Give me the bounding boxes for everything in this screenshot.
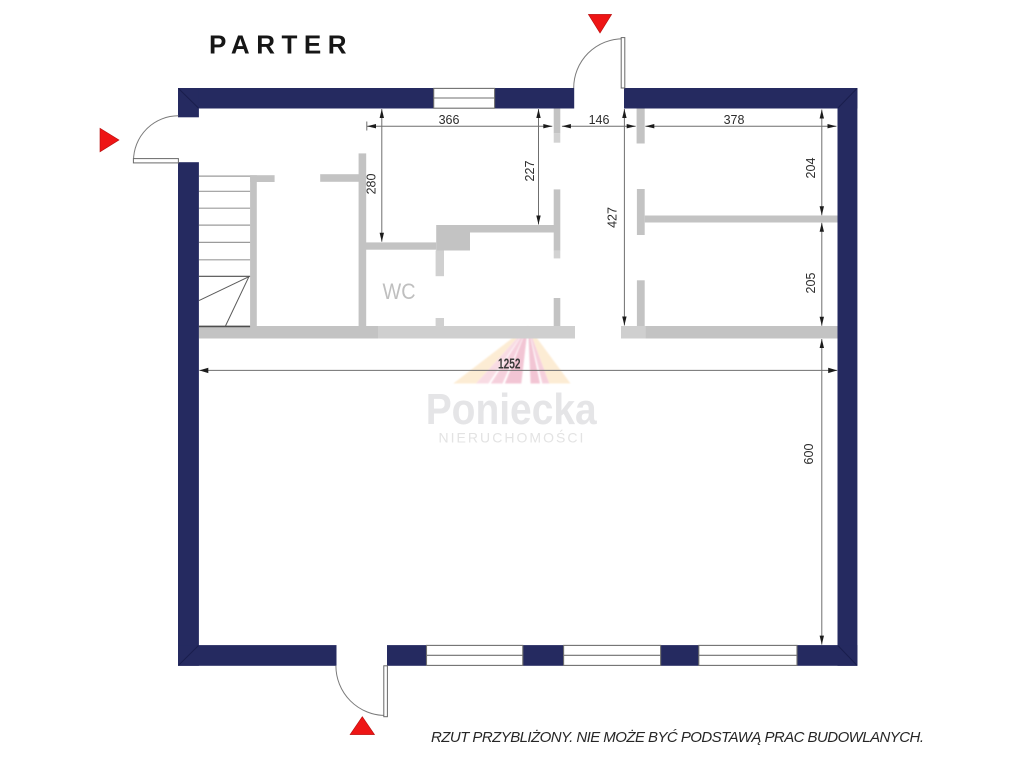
svg-text:280: 280 [364,174,378,195]
svg-text:146: 146 [589,113,610,127]
svg-text:1252: 1252 [498,356,521,372]
svg-text:NIERUCHOMOŚCI: NIERUCHOMOŚCI [438,428,586,445]
svg-text:204: 204 [804,158,818,179]
svg-text:Poniecka: Poniecka [426,385,597,434]
svg-text:427: 427 [605,207,619,228]
svg-text:600: 600 [802,444,816,465]
svg-text:PARTER: PARTER [209,29,353,59]
svg-text:227: 227 [523,161,537,182]
svg-text:205: 205 [804,273,818,294]
svg-text:366: 366 [439,113,460,127]
svg-text:RZUT PRZYBLIŻONY. NIE MOŻE BYĆ: RZUT PRZYBLIŻONY. NIE MOŻE BYĆ PODSTAWĄ … [431,729,924,746]
svg-text:WC: WC [383,279,416,304]
svg-text:378: 378 [724,113,745,127]
